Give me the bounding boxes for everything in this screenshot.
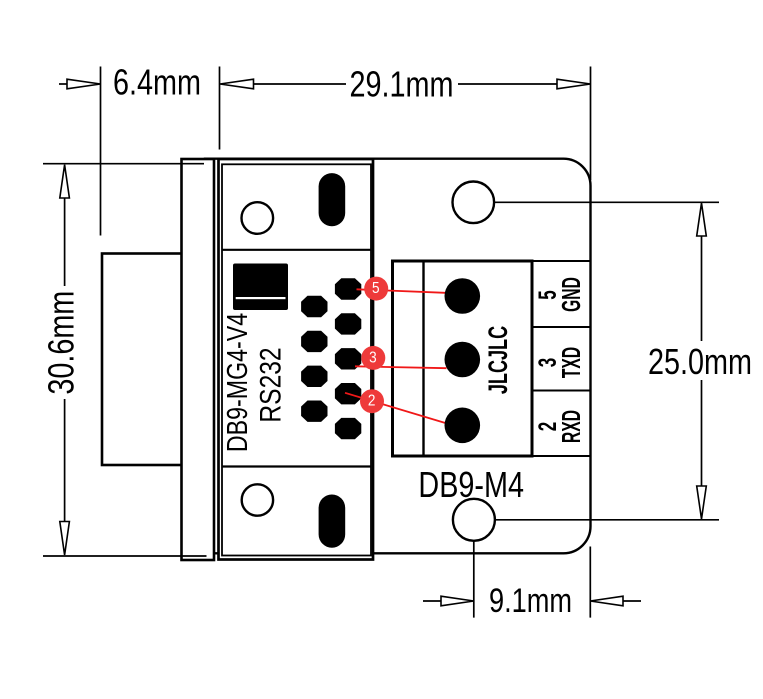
svg-text:DB9-MG4-V4: DB9-MG4-V4 xyxy=(221,313,254,452)
svg-text:GND: GND xyxy=(557,277,586,312)
svg-text:9.1mm: 9.1mm xyxy=(489,581,572,620)
svg-text:5: 5 xyxy=(372,280,380,297)
svg-text:29.1mm: 29.1mm xyxy=(350,64,454,105)
svg-text:RS232: RS232 xyxy=(253,347,287,422)
svg-text:DB9-M4: DB9-M4 xyxy=(418,464,524,505)
svg-text:25.0mm: 25.0mm xyxy=(648,341,752,382)
svg-text:30.6mm: 30.6mm xyxy=(40,291,81,395)
svg-text:TXD: TXD xyxy=(557,347,586,378)
svg-text:2: 2 xyxy=(368,393,376,410)
svg-text:RXD: RXD xyxy=(557,410,586,443)
svg-text:3: 3 xyxy=(369,349,377,366)
svg-text:6.4mm: 6.4mm xyxy=(113,62,201,103)
svg-text:JLCJLC: JLCJLC xyxy=(482,326,513,394)
